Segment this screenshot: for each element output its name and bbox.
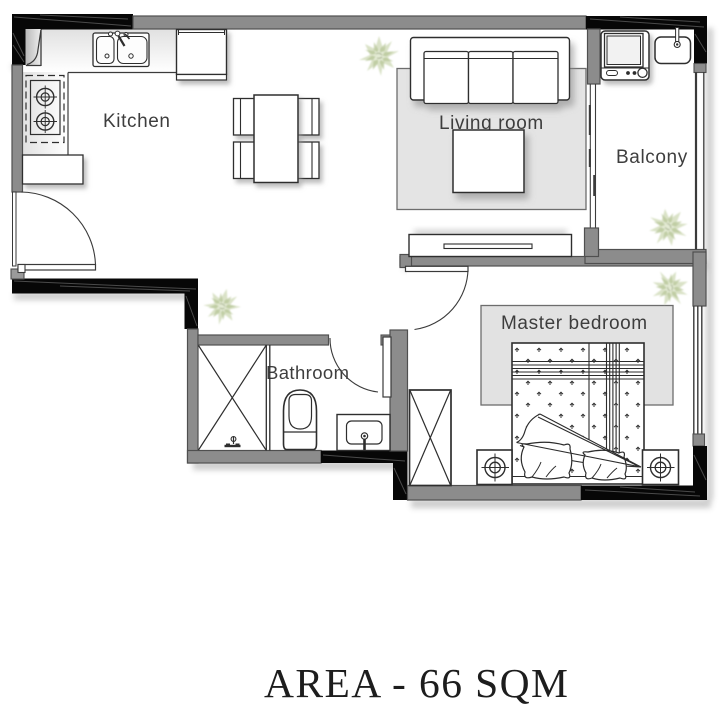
svg-text:Kitchen: Kitchen <box>103 111 171 132</box>
svg-text:AREA - 66 SQM: AREA - 66 SQM <box>264 660 569 706</box>
svg-text:Bathroom: Bathroom <box>266 362 349 383</box>
svg-text:Balcony: Balcony <box>616 147 688 168</box>
svg-text:Master bedroom: Master bedroom <box>501 313 648 334</box>
